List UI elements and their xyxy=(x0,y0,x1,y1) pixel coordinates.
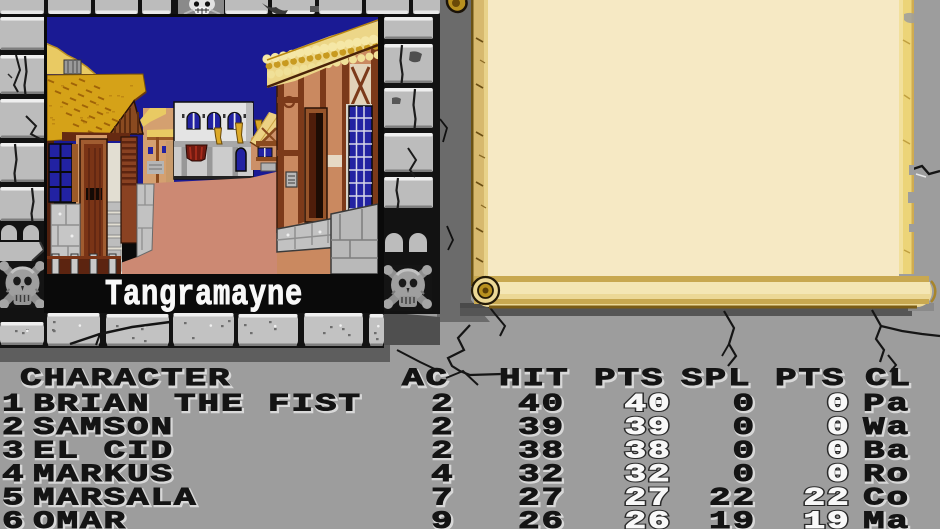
svg-text:CHARACTER: CHARACTER xyxy=(20,365,231,393)
svg-text:OMAR: OMAR xyxy=(33,508,127,529)
svg-text:PTS: PTS xyxy=(594,365,664,393)
svg-text:19: 19 xyxy=(709,508,756,529)
svg-text:Ma: Ma xyxy=(863,508,910,529)
svg-text:19: 19 xyxy=(804,508,851,529)
svg-text:SPL: SPL xyxy=(681,365,751,393)
svg-text:9: 9 xyxy=(431,508,455,529)
svg-text:HIT: HIT xyxy=(499,365,569,393)
svg-text:AC: AC xyxy=(402,365,449,393)
svg-text:26: 26 xyxy=(518,508,565,529)
svg-text:Tangramayne: Tangramayne xyxy=(105,274,303,315)
svg-text:PTS: PTS xyxy=(775,365,845,393)
svg-text:CL: CL xyxy=(865,365,912,393)
svg-text:6: 6 xyxy=(2,508,26,529)
svg-text:26: 26 xyxy=(625,508,672,529)
